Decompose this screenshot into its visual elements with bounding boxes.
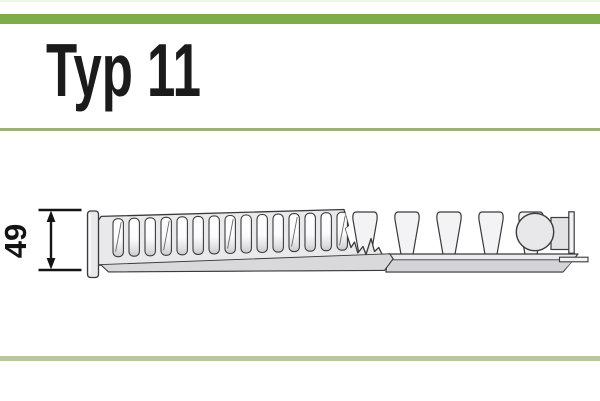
dimension-value: 49 (0, 224, 33, 258)
bottom-panel-shadow (388, 260, 574, 272)
grille-slot (193, 216, 203, 254)
convector-fin (479, 212, 503, 255)
grille-slot (177, 217, 187, 255)
grille-slot (241, 215, 251, 253)
grille-slot (129, 218, 139, 256)
left-end-cap (88, 211, 99, 278)
convector-fin (437, 212, 461, 255)
connection-hub (516, 213, 553, 250)
dimension-arrowhead-down (47, 258, 56, 270)
connection-pipe (560, 257, 589, 262)
dimension-arrowhead-up (47, 211, 56, 223)
grille-panel (98, 210, 393, 272)
grille-slot (305, 213, 315, 251)
grille-slot (321, 213, 331, 251)
grille-slot (145, 218, 155, 256)
page: Typ 11 49 (0, 0, 600, 401)
bottom-panel (386, 254, 578, 272)
bottom-rule (0, 356, 600, 361)
grille-slots (113, 212, 347, 257)
grille-slot (273, 214, 283, 252)
dimension-annotation: 49 (0, 210, 82, 270)
convector-fins (353, 212, 543, 255)
convector-fin (395, 212, 419, 255)
connection-flange (569, 212, 574, 253)
radiator-diagram: 49 (0, 0, 600, 401)
grille-slot (209, 216, 219, 254)
grille-slot (257, 215, 267, 253)
